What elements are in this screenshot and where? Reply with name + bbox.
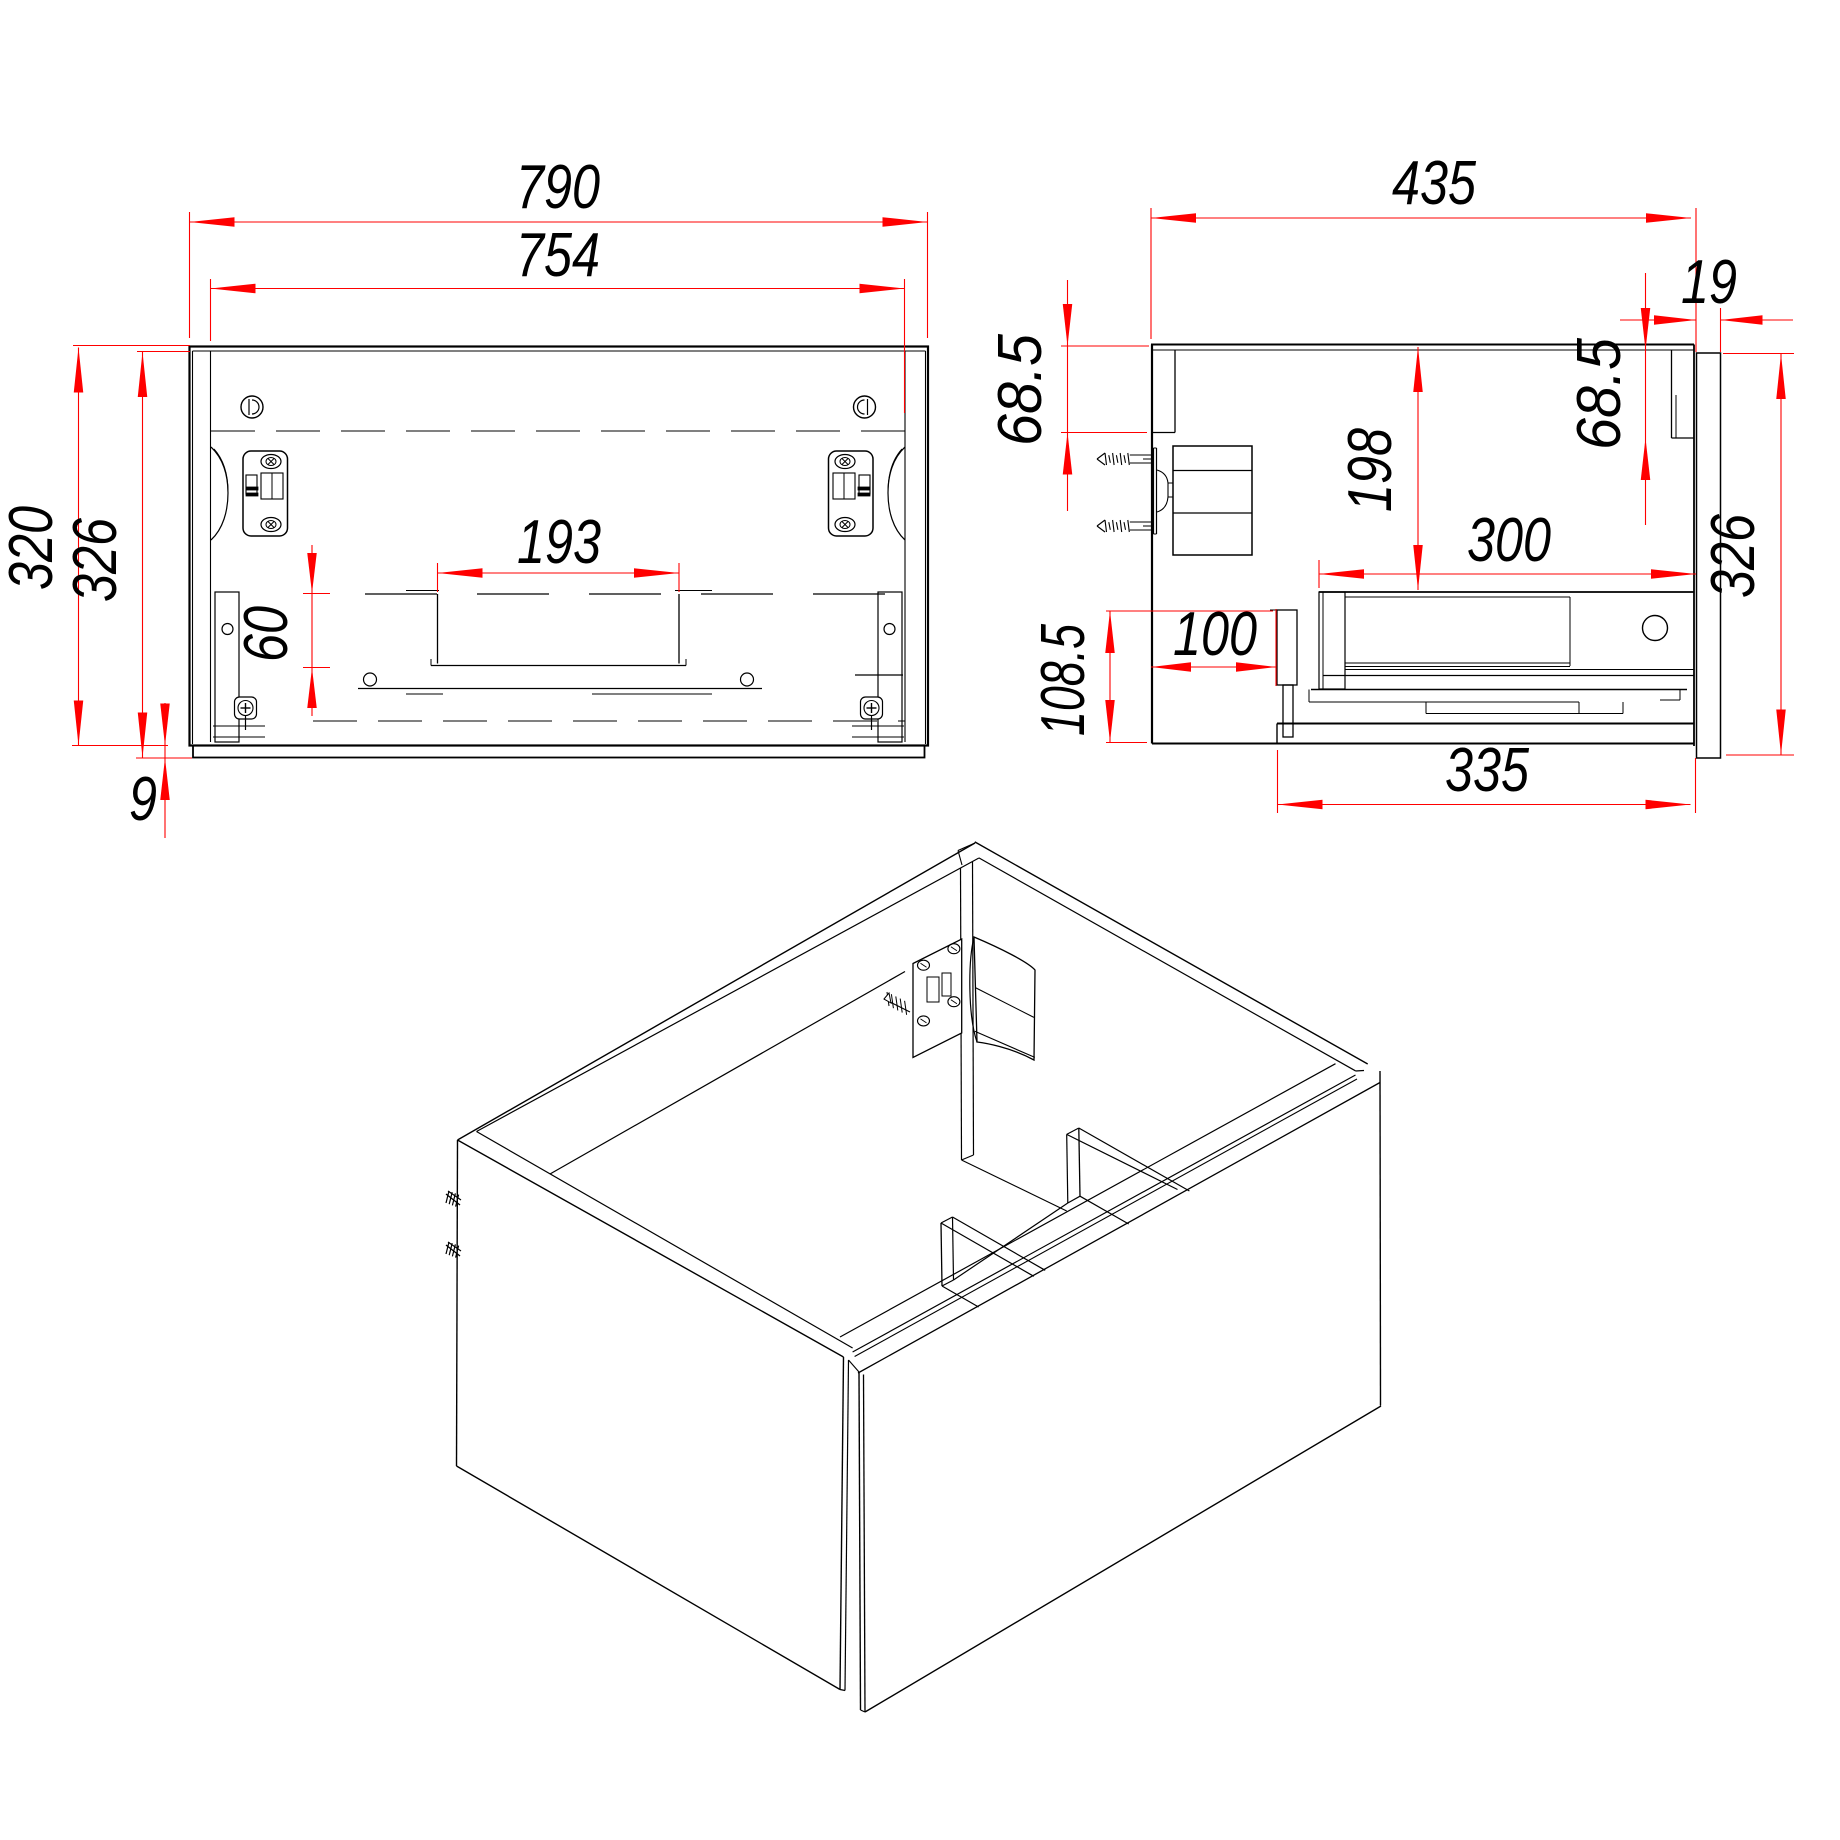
svg-text:300: 300 [1467, 506, 1551, 575]
svg-text:108.5: 108.5 [1029, 624, 1098, 736]
svg-text:790: 790 [516, 153, 600, 222]
svg-text:335: 335 [1445, 736, 1529, 805]
svg-text:198: 198 [1336, 428, 1405, 512]
svg-text:19: 19 [1681, 248, 1737, 317]
svg-text:60: 60 [232, 606, 301, 662]
svg-text:435: 435 [1392, 149, 1476, 218]
svg-text:320: 320 [0, 506, 66, 590]
svg-text:9: 9 [129, 765, 157, 834]
svg-text:68.5: 68.5 [986, 334, 1055, 446]
svg-text:193: 193 [517, 508, 601, 577]
svg-text:326: 326 [61, 518, 130, 602]
svg-text:100: 100 [1173, 600, 1257, 669]
svg-text:754: 754 [516, 221, 600, 290]
svg-text:326: 326 [1699, 514, 1768, 598]
svg-text:68.5: 68.5 [1565, 338, 1634, 450]
